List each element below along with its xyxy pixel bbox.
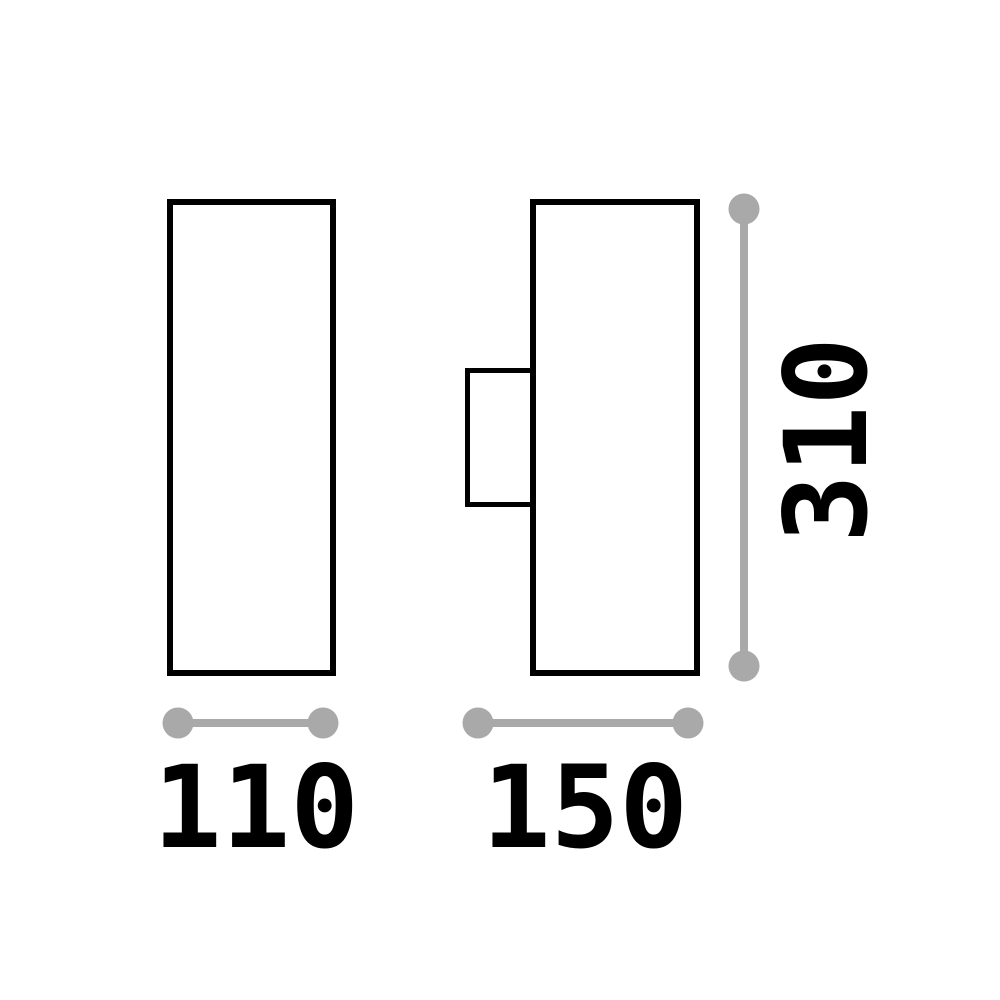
- height-label: 310: [770, 337, 884, 543]
- side-depth-dimension-line: [478, 719, 688, 727]
- side-view-mount-outline: [465, 368, 536, 507]
- front-width-dimension-endpoint-right-icon: [308, 708, 339, 739]
- side-depth-label: 150: [482, 751, 688, 865]
- side-depth-dimension-endpoint-left-icon: [463, 708, 494, 739]
- front-width-label: 110: [153, 751, 359, 865]
- dimension-diagram: 110 150 310: [0, 0, 1000, 1000]
- side-view-outline: [530, 199, 700, 676]
- height-dimension-line: [740, 209, 748, 666]
- side-depth-dimension-endpoint-right-icon: [673, 708, 704, 739]
- height-dimension-endpoint-bottom-icon: [729, 651, 760, 682]
- height-dimension-endpoint-top-icon: [729, 194, 760, 225]
- front-width-dimension-line: [178, 719, 323, 727]
- front-view-outline: [167, 199, 336, 676]
- front-width-dimension-endpoint-left-icon: [163, 708, 194, 739]
